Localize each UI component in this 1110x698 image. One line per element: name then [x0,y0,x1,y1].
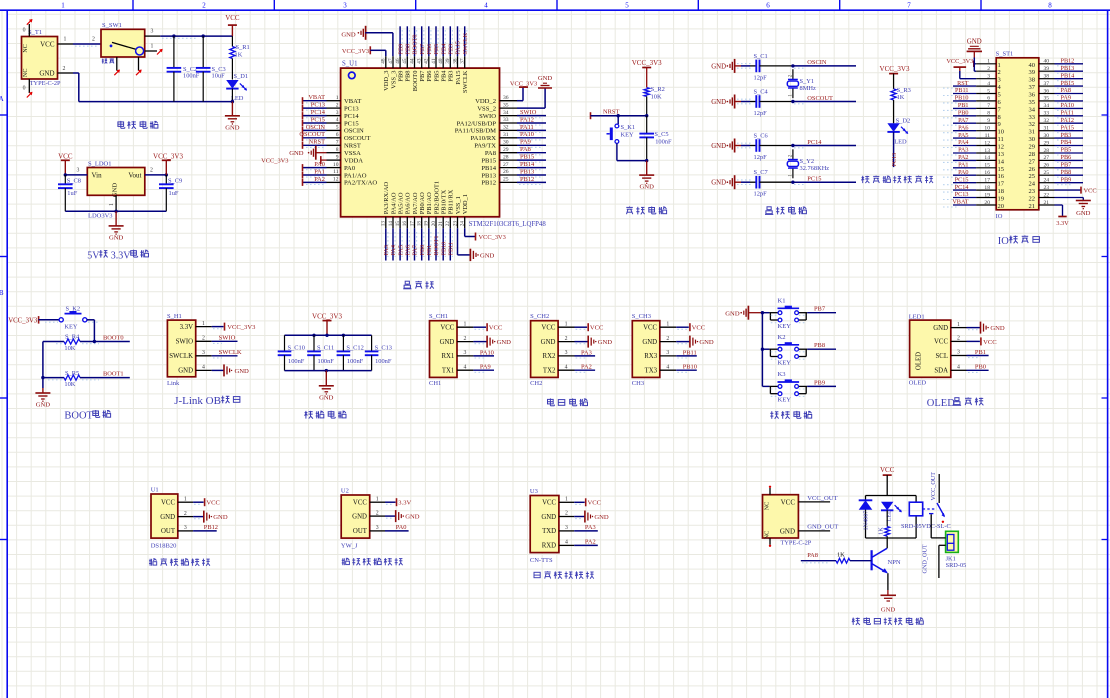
svg-text:2: 2 [376,510,379,516]
svg-text:CH1: CH1 [429,380,441,387]
svg-text:VCC: VCC [40,41,55,49]
svg-text:RX3: RX3 [644,353,657,360]
svg-text:GND: GND [541,339,556,346]
svg-text:K2: K2 [778,334,786,341]
svg-text:1uF: 1uF [67,190,77,197]
svg-text:VCC: VCC [542,500,556,507]
svg-text:3: 3 [464,350,467,356]
svg-text:VDDA: VDDA [344,157,363,164]
svg-text:S_D1: S_D1 [234,73,249,80]
svg-text:PA8: PA8 [520,146,531,153]
svg-text:RX1: RX1 [441,353,454,360]
svg-text:100nF: 100nF [655,138,672,145]
svg-text:VCC_OUT: VCC_OUT [807,495,837,502]
svg-text:S_C8: S_C8 [67,178,81,185]
svg-text:PA2: PA2 [958,154,968,161]
svg-text:4: 4 [202,365,205,371]
svg-text:PB11: PB11 [683,349,697,356]
svg-text:45: 45 [402,58,408,64]
svg-text:GND: GND [711,180,726,187]
svg-text:GND: GND [225,124,240,131]
svg-text:17: 17 [409,221,415,227]
svg-text:PA6/AO: PA6/AO [405,192,412,214]
svg-text:100nF: 100nF [288,358,305,365]
svg-text:PA5: PA5 [397,245,404,255]
svg-text:34: 34 [1044,103,1050,109]
svg-text:RST: RST [957,80,969,87]
svg-text:1: 1 [109,203,115,206]
svg-text:PB8: PB8 [405,44,412,55]
svg-text:PB10/TX: PB10/TX [441,189,448,214]
svg-text:PA11: PA11 [520,124,534,131]
svg-text:PB2/BOOT1: PB2/BOOT1 [433,181,440,214]
svg-text:PB8: PB8 [814,342,825,349]
svg-text:28: 28 [503,154,509,160]
svg-text:GND: GND [711,63,726,70]
svg-text:PC15: PC15 [955,176,969,183]
svg-text:21: 21 [1044,200,1050,206]
svg-text:PB6: PB6 [426,71,433,82]
svg-text:SRD-05VDC-SL-C: SRD-05VDC-SL-C [901,523,951,530]
svg-text:11: 11 [333,169,339,175]
svg-text:33: 33 [1029,114,1036,121]
svg-text:4: 4 [336,117,339,123]
svg-text:40: 40 [438,58,444,64]
svg-text:4: 4 [464,364,467,370]
svg-text:GND: GND [39,69,54,77]
svg-text:SWCLK: SWCLK [219,349,242,356]
svg-text:STM32F103C8T6_LQFP48: STM32F103C8T6_LQFP48 [469,221,547,228]
svg-text:32: 32 [503,125,509,131]
svg-text:GND: GND [541,514,556,521]
svg-text:S_C4: S_C4 [754,88,769,95]
svg-text:2: 2 [184,511,187,517]
svg-text:GND: GND [405,514,420,521]
svg-text:S_C12: S_C12 [346,345,363,352]
svg-text:PB0: PB0 [958,110,969,117]
svg-text:PB3: PB3 [448,71,455,82]
svg-text:3: 3 [666,350,669,356]
svg-text:PB8: PB8 [1061,169,1072,176]
svg-text:PB12: PB12 [481,180,496,187]
svg-text:30: 30 [1029,136,1036,143]
svg-text:PA3: PA3 [585,524,596,531]
svg-text:PB9: PB9 [1061,176,1072,183]
svg-text:12pF: 12pF [754,191,768,198]
svg-text:18: 18 [417,221,423,227]
svg-text:2: 2 [565,336,568,342]
svg-text:11: 11 [998,136,1004,143]
svg-text:LED: LED [885,509,892,522]
svg-text:0: 0 [23,86,26,92]
svg-text:PB1: PB1 [426,245,433,256]
svg-text:3.3V: 3.3V [180,324,193,331]
svg-text:RX2: RX2 [543,353,556,360]
svg-text:PB3: PB3 [448,44,455,55]
svg-text:27: 27 [503,162,509,168]
svg-text:29: 29 [1029,144,1036,151]
svg-text:40: 40 [1029,62,1036,69]
svg-text:VCC: VCC [161,500,175,507]
svg-text:Vin: Vin [92,171,103,179]
svg-text:VCC_3V3: VCC_3V3 [342,48,369,55]
svg-text:3: 3 [336,110,339,116]
svg-text:BOOT0: BOOT0 [412,71,419,92]
svg-text:VCC: VCC [643,325,657,332]
svg-text:VSSA: VSSA [344,150,361,157]
svg-text:S_C13: S_C13 [375,345,392,352]
svg-text:OSCOUT: OSCOUT [344,135,370,142]
svg-text:VCC_3V3: VCC_3V3 [880,65,910,73]
svg-text:1: 1 [957,322,960,328]
svg-text:43: 43 [417,58,423,64]
svg-text:SRD-05: SRD-05 [946,562,967,569]
svg-text:PA5: PA5 [958,132,968,139]
svg-text:NC: NC [22,44,29,53]
svg-text:GND: GND [112,183,119,198]
svg-text:12: 12 [998,144,1005,151]
svg-text:1: 1 [61,2,65,10]
svg-text:PA1: PA1 [314,168,325,175]
svg-text:VCC_OUT: VCC_OUT [930,472,937,501]
svg-text:S_LDO1: S_LDO1 [88,160,111,167]
svg-text:31: 31 [1044,126,1050,132]
svg-text:PB5: PB5 [433,71,440,82]
svg-text:K1: K1 [778,298,786,305]
svg-text:PA4/AO: PA4/AO [390,192,397,214]
svg-text:Vout: Vout [128,171,141,179]
svg-text:VCC_3V3: VCC_3V3 [632,59,662,67]
svg-text:PB6: PB6 [1061,154,1072,161]
svg-text:24: 24 [1029,181,1036,188]
svg-text:15: 15 [998,166,1005,173]
svg-text:S_C7: S_C7 [754,169,769,176]
svg-text:PC13: PC13 [311,102,325,109]
svg-text:44: 44 [409,58,415,64]
svg-text:PB0: PB0 [419,245,426,256]
svg-text:16: 16 [984,170,990,176]
svg-text:GND_OUT: GND_OUT [807,524,838,531]
svg-text:PB14: PB14 [481,165,496,172]
svg-text:22: 22 [1044,192,1050,198]
svg-text:GND: GND [352,513,367,520]
svg-text:LED: LED [894,138,907,145]
svg-text:GND: GND [497,339,512,346]
svg-text:J-Link OB: J-Link OB [174,395,221,407]
svg-text:GND: GND [480,252,495,259]
svg-text:39: 39 [1029,69,1036,76]
svg-text:16: 16 [402,221,408,227]
svg-text:S_SW1: S_SW1 [102,22,122,29]
svg-text:SWCLK: SWCLK [462,70,469,93]
svg-text:2: 2 [202,2,206,10]
svg-text:PB11: PB11 [448,242,455,256]
svg-text:GND: GND [213,514,228,521]
svg-text:VBAT: VBAT [308,94,325,101]
svg-text:3: 3 [184,525,187,531]
svg-text:BOOT: BOOT [64,411,93,422]
svg-text:1: 1 [336,95,339,101]
svg-text:PA10: PA10 [520,131,534,138]
svg-text:25: 25 [503,177,509,183]
svg-text:26: 26 [1029,166,1036,173]
svg-text:21: 21 [1029,203,1036,210]
svg-text:3: 3 [565,525,568,531]
svg-text:17: 17 [998,181,1005,188]
svg-text:VDD_3: VDD_3 [383,71,390,91]
svg-text:S_C5: S_C5 [654,131,668,138]
svg-text:28: 28 [1029,151,1036,158]
svg-text:PB4: PB4 [441,70,448,82]
svg-text:2: 2 [464,336,467,342]
svg-text:S_Y1: S_Y1 [800,78,815,85]
svg-text:38: 38 [1044,74,1050,80]
svg-text:GND: GND [160,514,175,521]
svg-text:12: 12 [984,140,990,146]
svg-text:K3: K3 [778,371,787,378]
svg-text:3.3V: 3.3V [1056,220,1069,227]
svg-text:VCC: VCC [692,325,706,332]
svg-text:S_U1: S_U1 [342,61,358,68]
svg-text:1: 1 [464,321,467,327]
svg-text:10: 10 [998,129,1005,136]
svg-text:PA3: PA3 [581,349,592,356]
svg-text:2: 2 [987,66,990,72]
svg-text:47: 47 [388,58,394,64]
svg-text:6: 6 [987,96,990,102]
svg-text:CH3: CH3 [632,380,644,387]
svg-text:PA9/TX: PA9/TX [474,143,496,150]
svg-text:PA12: PA12 [1061,117,1075,124]
svg-text:LED1: LED1 [909,313,925,320]
svg-text:PB10: PB10 [955,95,969,102]
svg-text:3: 3 [77,167,80,173]
svg-text:S_R1: S_R1 [236,44,250,51]
svg-text:39: 39 [1044,66,1050,72]
svg-text:VCC: VCC [225,14,240,22]
svg-text:PC14: PC14 [807,139,822,146]
svg-text:PA9: PA9 [1061,95,1071,102]
svg-text:PB13: PB13 [520,168,534,175]
svg-text:VCC: VCC [206,500,220,507]
svg-text:VCC: VCC [1084,187,1097,194]
svg-text:14: 14 [998,158,1005,165]
svg-text:6: 6 [766,2,770,10]
svg-text:PB3: PB3 [1061,132,1072,139]
svg-text:3: 3 [998,77,1001,84]
svg-text:PA15: PA15 [455,41,462,55]
svg-text:8: 8 [1048,2,1052,10]
svg-text:SWCLK: SWCLK [462,32,469,54]
svg-text:38: 38 [452,58,458,64]
svg-text:S_C6: S_C6 [754,132,768,139]
svg-text:30: 30 [1044,133,1050,139]
svg-text:16: 16 [998,173,1005,180]
svg-text:26: 26 [503,169,509,175]
svg-text:PB6: PB6 [426,44,433,55]
svg-text:OSCIN: OSCIN [344,128,364,135]
svg-text:32: 32 [1044,118,1050,124]
svg-text:NC: NC [763,502,770,511]
svg-text:20: 20 [431,221,437,227]
svg-text:35: 35 [1029,99,1036,106]
svg-text:PA9: PA9 [520,139,531,146]
svg-text:9: 9 [998,121,1001,128]
svg-text:1: 1 [987,59,990,65]
svg-text:PC14: PC14 [311,109,326,116]
svg-text:Link: Link [167,380,180,387]
svg-text:GND: GND [598,339,613,346]
svg-text:IO: IO [996,213,1003,220]
svg-text:SWIO: SWIO [219,335,236,342]
svg-text:S_CH3: S_CH3 [632,313,651,320]
svg-text:8: 8 [336,147,339,153]
svg-text:100nF: 100nF [183,73,200,80]
svg-text:VCC: VCC [588,500,602,507]
svg-text:NPN: NPN [888,559,901,566]
svg-text:PB15: PB15 [1061,80,1075,87]
svg-text:2: 2 [202,336,205,342]
svg-text:PA3: PA3 [958,147,968,154]
svg-text:1: 1 [565,497,568,503]
svg-text:4: 4 [565,364,568,370]
svg-text:10: 10 [333,162,339,168]
svg-text:PA0: PA0 [344,165,356,172]
svg-text:2: 2 [92,37,95,43]
svg-text:PA10/RX: PA10/RX [471,135,497,142]
svg-text:12pF: 12pF [754,154,768,161]
svg-text:31: 31 [1029,129,1036,136]
svg-text:2: 2 [998,69,1001,76]
svg-text:SDA: SDA [934,368,948,375]
svg-text:PC14: PC14 [344,113,359,120]
svg-text:12pF: 12pF [754,74,768,81]
svg-text:14: 14 [984,155,990,161]
svg-text:PB11: PB11 [955,87,969,94]
svg-text:OSCOUT: OSCOUT [807,95,833,102]
svg-text:1K: 1K [877,527,884,535]
svg-text:30: 30 [503,140,509,146]
svg-text:GND: GND [933,325,948,332]
svg-text:GND: GND [725,310,740,317]
svg-text:PB1: PB1 [975,349,986,356]
svg-text:PC14: PC14 [955,184,969,191]
svg-text:NC: NC [763,531,770,540]
svg-text:PA10: PA10 [480,349,494,356]
svg-text:4: 4 [565,540,568,546]
svg-text:11: 11 [985,133,991,139]
svg-text:4: 4 [666,364,669,370]
svg-text:6: 6 [336,132,339,138]
svg-text:PB1/AO: PB1/AO [426,192,433,214]
svg-text:VCC_3V3: VCC_3V3 [510,80,537,87]
svg-text:8: 8 [987,111,990,117]
svg-text:TYPE-C-2P: TYPE-C-2P [30,80,61,87]
svg-text:PB15: PB15 [520,154,534,161]
svg-text:PB7: PB7 [1061,162,1072,169]
svg-text:10uF: 10uF [212,73,226,80]
svg-text:3: 3 [151,29,154,35]
svg-text:VSS_2: VSS_2 [477,105,496,112]
svg-text:GND: GND [594,514,609,521]
svg-text:PC13: PC13 [344,105,359,112]
svg-text:CH2: CH2 [530,380,542,387]
svg-text:VCC_3V3: VCC_3V3 [312,312,342,320]
svg-text:32.768KHz: 32.768KHz [800,165,830,172]
svg-text:SWIO: SWIO [479,113,496,120]
svg-text:PA12: PA12 [520,116,534,123]
svg-text:VCC_3V3: VCC_3V3 [479,234,506,241]
svg-text:GND: GND [699,339,714,346]
svg-text:8: 8 [998,114,1001,121]
svg-text:1: 1 [376,496,379,502]
svg-text:BOOT0: BOOT0 [412,35,419,55]
svg-text:23: 23 [452,221,458,227]
svg-text:TXD: TXD [542,528,556,535]
svg-text:U3: U3 [530,488,538,495]
svg-text:S_H1: S_H1 [167,313,182,320]
svg-text:18: 18 [984,185,990,191]
svg-text:13: 13 [984,148,990,154]
svg-text:1: 1 [998,62,1001,69]
svg-text:VDD_2: VDD_2 [475,98,496,105]
svg-text:GND: GND [881,607,896,614]
svg-text:25: 25 [1044,170,1050,176]
svg-text:32: 32 [1029,121,1036,128]
svg-text:DS18B20: DS18B20 [151,542,177,549]
svg-text:22: 22 [445,221,451,227]
svg-text:2: 2 [63,66,66,72]
svg-text:VCC_3V3: VCC_3V3 [153,152,183,160]
svg-text:KEY: KEY [64,323,78,330]
svg-text:A: A [0,95,4,103]
svg-text:1: 1 [666,321,669,327]
svg-text:2: 2 [565,511,568,517]
svg-text:PA8: PA8 [1061,87,1071,94]
svg-text:PA2: PA2 [585,539,596,546]
svg-text:SCL: SCL [936,353,948,360]
svg-text:PA5/AO: PA5/AO [398,192,405,214]
svg-text:S_Y2: S_Y2 [800,158,815,165]
svg-text:BOOT1: BOOT1 [433,236,440,256]
svg-text:VCC: VCC [353,500,367,507]
svg-text:18: 18 [998,188,1005,195]
svg-text:1: 1 [151,44,154,50]
svg-text:33: 33 [1044,111,1050,117]
svg-text:24: 24 [1044,178,1050,184]
svg-text:PA10: PA10 [1061,102,1075,109]
svg-text:1: 1 [202,321,205,327]
svg-text:PA2: PA2 [581,364,592,371]
svg-text:41: 41 [431,58,437,64]
svg-text:1K: 1K [235,52,243,59]
svg-text:27: 27 [1029,158,1036,165]
svg-text:46: 46 [395,58,401,64]
svg-text:29: 29 [503,147,509,153]
svg-text:PA0: PA0 [314,161,325,168]
svg-text:S_R3: S_R3 [897,87,911,94]
svg-text:GND: GND [711,99,726,106]
svg-text:PA6: PA6 [405,245,412,255]
svg-text:BOOT1: BOOT1 [103,371,124,378]
svg-text:28: 28 [1044,148,1050,154]
svg-text:PB12: PB12 [1061,58,1075,65]
svg-text:VBAT: VBAT [344,98,361,105]
svg-text:15: 15 [395,221,401,227]
svg-text:YW_J: YW_J [341,542,358,549]
svg-text:37: 37 [1029,84,1036,91]
svg-text:4: 4 [957,365,960,371]
